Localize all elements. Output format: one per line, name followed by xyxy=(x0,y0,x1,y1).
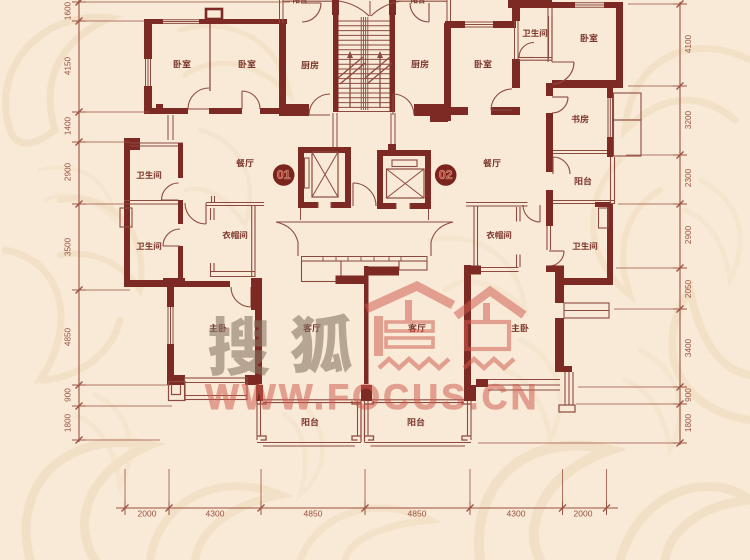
svg-text:3400: 3400 xyxy=(684,338,693,357)
svg-text:1600: 1600 xyxy=(64,1,73,20)
svg-text:1400: 1400 xyxy=(64,116,73,135)
svg-text:4300: 4300 xyxy=(206,509,225,519)
svg-text:4300: 4300 xyxy=(507,509,526,519)
svg-text:2300: 2300 xyxy=(684,168,693,187)
svg-text:2050: 2050 xyxy=(684,279,693,298)
svg-text:2900: 2900 xyxy=(684,225,693,244)
svg-text:2000: 2000 xyxy=(574,509,593,519)
svg-text:900: 900 xyxy=(64,388,73,402)
svg-text:4100: 4100 xyxy=(684,34,693,53)
svg-text:1800: 1800 xyxy=(64,413,73,432)
svg-text:2000: 2000 xyxy=(138,509,157,519)
svg-text:02: 02 xyxy=(439,168,453,182)
svg-text:4850: 4850 xyxy=(408,509,427,519)
svg-text:4150: 4150 xyxy=(64,56,73,75)
svg-text:900: 900 xyxy=(684,388,693,402)
svg-text:4850: 4850 xyxy=(304,509,323,519)
svg-text:4850: 4850 xyxy=(64,327,73,346)
svg-text:1800: 1800 xyxy=(684,413,693,432)
svg-text:2900: 2900 xyxy=(64,162,73,181)
svg-text:3200: 3200 xyxy=(684,110,693,129)
svg-text:01: 01 xyxy=(277,168,291,182)
svg-text:WWW.FOCUS.CN: WWW.FOCUS.CN xyxy=(205,377,540,417)
svg-text:3500: 3500 xyxy=(64,237,73,256)
